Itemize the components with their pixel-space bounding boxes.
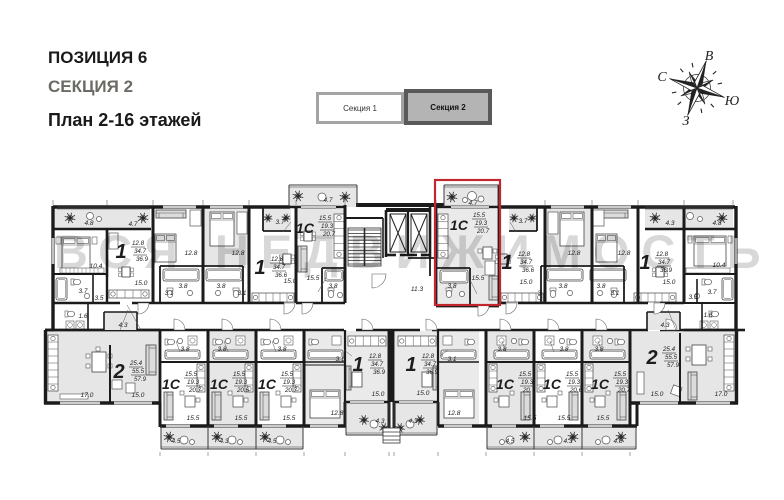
svg-text:57.9: 57.9 xyxy=(667,362,680,369)
svg-text:20.6: 20.6 xyxy=(569,387,583,394)
svg-text:3.1: 3.1 xyxy=(610,290,619,297)
svg-text:3.1: 3.1 xyxy=(537,290,546,297)
svg-text:3.5: 3.5 xyxy=(688,294,697,301)
svg-text:19.3: 19.3 xyxy=(187,379,200,386)
svg-text:3.8: 3.8 xyxy=(216,283,225,290)
svg-text:15.5: 15.5 xyxy=(597,415,610,422)
svg-text:3.8: 3.8 xyxy=(277,346,286,353)
svg-text:2: 2 xyxy=(112,361,124,383)
svg-text:34.7: 34.7 xyxy=(371,361,384,368)
svg-text:55.5: 55.5 xyxy=(132,368,145,375)
svg-text:15.5: 15.5 xyxy=(281,371,294,378)
svg-text:4.3: 4.3 xyxy=(563,438,572,445)
svg-text:15.5: 15.5 xyxy=(233,371,246,378)
svg-text:1С: 1С xyxy=(162,376,181,392)
svg-text:34.7: 34.7 xyxy=(424,361,437,368)
svg-text:2: 2 xyxy=(645,347,657,369)
svg-text:1С: 1С xyxy=(210,376,229,392)
svg-text:15.0: 15.0 xyxy=(651,391,664,398)
svg-text:19.3: 19.3 xyxy=(235,379,248,386)
svg-text:3.7: 3.7 xyxy=(707,289,716,296)
svg-text:12.8: 12.8 xyxy=(448,410,461,417)
svg-text:20.7: 20.7 xyxy=(617,387,631,394)
svg-text:4.3: 4.3 xyxy=(118,322,127,329)
svg-text:15.0: 15.0 xyxy=(135,280,148,287)
svg-text:19.3: 19.3 xyxy=(568,379,581,386)
svg-text:36.9: 36.9 xyxy=(426,369,439,376)
svg-text:4.5: 4.5 xyxy=(613,438,622,445)
svg-text:ВСЯ НЕДВИЖИМОСТЬ: ВСЯ НЕДВИЖИМОСТЬ xyxy=(54,225,773,278)
svg-text:15.5: 15.5 xyxy=(566,371,579,378)
svg-text:3.8: 3.8 xyxy=(558,283,567,290)
svg-text:55.5: 55.5 xyxy=(665,354,678,361)
svg-text:15.5: 15.5 xyxy=(235,415,248,422)
svg-text:1С: 1С xyxy=(258,376,277,392)
svg-text:1С: 1С xyxy=(543,376,562,392)
svg-text:3.8: 3.8 xyxy=(217,346,226,353)
svg-text:15.5: 15.5 xyxy=(283,415,296,422)
svg-text:3.1: 3.1 xyxy=(447,356,456,363)
svg-text:4.3: 4.3 xyxy=(408,418,417,425)
svg-text:12.8: 12.8 xyxy=(422,353,435,360)
svg-text:57.9: 57.9 xyxy=(134,376,147,383)
svg-text:1С: 1С xyxy=(591,376,610,392)
svg-text:15.5: 15.5 xyxy=(185,371,198,378)
svg-text:Ю: Ю xyxy=(724,94,740,109)
svg-text:1С: 1С xyxy=(496,376,515,392)
svg-text:1: 1 xyxy=(405,354,416,376)
svg-text:3.8: 3.8 xyxy=(559,346,568,353)
svg-text:11.3: 11.3 xyxy=(411,286,424,293)
svg-text:4.5: 4.5 xyxy=(267,438,276,445)
svg-text:20.7: 20.7 xyxy=(188,387,202,394)
svg-text:4.7: 4.7 xyxy=(468,200,477,207)
svg-text:15.5: 15.5 xyxy=(558,415,571,422)
svg-text:4.3: 4.3 xyxy=(375,418,384,425)
svg-text:1.6: 1.6 xyxy=(703,312,712,319)
svg-text:15.0: 15.0 xyxy=(132,392,145,399)
svg-text:3.5: 3.5 xyxy=(94,295,103,302)
svg-text:15.5: 15.5 xyxy=(319,215,332,222)
svg-text:25.4: 25.4 xyxy=(129,360,143,367)
svg-text:3.7: 3.7 xyxy=(518,218,527,225)
svg-text:3.8: 3.8 xyxy=(497,346,506,353)
svg-text:4.3: 4.3 xyxy=(660,322,669,329)
svg-text:15.5: 15.5 xyxy=(187,415,200,422)
svg-text:20.6: 20.6 xyxy=(236,387,250,394)
svg-text:19.3: 19.3 xyxy=(283,379,296,386)
svg-text:С: С xyxy=(657,70,667,85)
svg-text:3.7: 3.7 xyxy=(78,288,87,295)
svg-text:1: 1 xyxy=(352,354,363,376)
svg-text:4.5: 4.5 xyxy=(171,438,180,445)
svg-text:25.4: 25.4 xyxy=(662,346,676,353)
svg-text:В: В xyxy=(705,49,714,64)
svg-text:З: З xyxy=(683,114,690,129)
svg-text:17.0: 17.0 xyxy=(715,391,728,398)
svg-text:19.3: 19.3 xyxy=(521,379,534,386)
svg-text:15.5: 15.5 xyxy=(614,371,627,378)
svg-text:15.0: 15.0 xyxy=(520,279,533,286)
svg-text:3.1: 3.1 xyxy=(237,290,246,297)
svg-text:3.8: 3.8 xyxy=(447,283,456,290)
svg-text:15.5: 15.5 xyxy=(519,371,532,378)
svg-text:3.8: 3.8 xyxy=(596,283,605,290)
svg-text:4.3: 4.3 xyxy=(219,438,228,445)
svg-text:20.7: 20.7 xyxy=(522,387,536,394)
svg-text:15.0: 15.0 xyxy=(284,278,297,285)
svg-text:3.8: 3.8 xyxy=(594,346,603,353)
svg-text:3.1: 3.1 xyxy=(335,356,344,363)
svg-text:3.8: 3.8 xyxy=(178,283,187,290)
svg-text:19.3: 19.3 xyxy=(616,379,629,386)
svg-text:15.5: 15.5 xyxy=(524,415,537,422)
svg-text:3.1: 3.1 xyxy=(164,290,173,297)
svg-text:15.0: 15.0 xyxy=(417,390,430,397)
svg-text:15.0: 15.0 xyxy=(663,279,676,286)
svg-text:36.9: 36.9 xyxy=(373,369,386,376)
svg-text:12.8: 12.8 xyxy=(331,410,344,417)
svg-text:3.8: 3.8 xyxy=(180,346,189,353)
svg-text:4.5: 4.5 xyxy=(505,438,514,445)
svg-text:15.5: 15.5 xyxy=(473,212,486,219)
svg-text:3.8: 3.8 xyxy=(328,283,337,290)
svg-text:15.0: 15.0 xyxy=(372,391,385,398)
svg-text:20.7: 20.7 xyxy=(284,387,298,394)
svg-text:12.8: 12.8 xyxy=(369,353,382,360)
svg-text:1.6: 1.6 xyxy=(78,313,87,320)
svg-text:17.0: 17.0 xyxy=(81,392,94,399)
svg-text:4.7: 4.7 xyxy=(323,197,332,204)
